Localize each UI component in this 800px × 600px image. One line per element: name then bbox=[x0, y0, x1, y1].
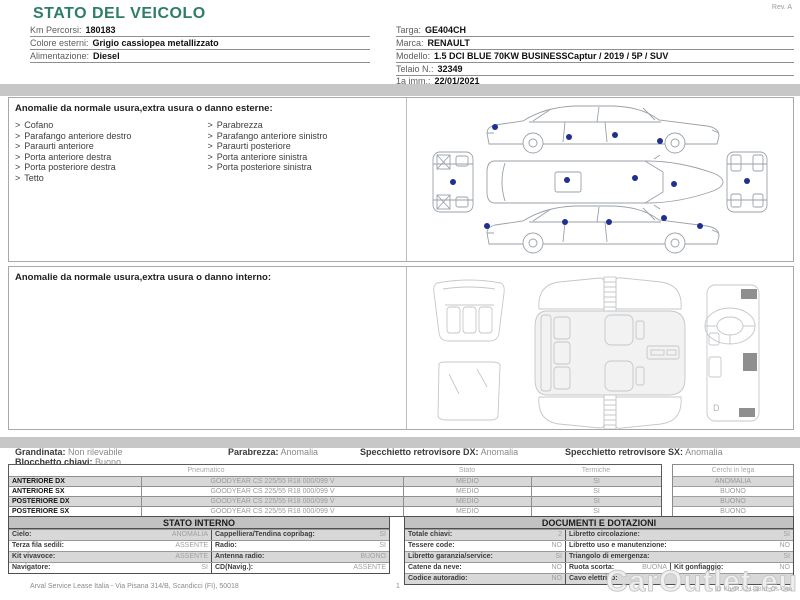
exterior-diagram-panel bbox=[407, 98, 793, 261]
exterior-damage-diagram bbox=[407, 100, 793, 260]
interior-diagram: D bbox=[407, 269, 793, 429]
tire-termiche: SI bbox=[531, 477, 661, 486]
tire-spec: GOODYEAR CS 225/55 R18 000/099 V bbox=[141, 507, 403, 516]
list-item: >Parabrezza bbox=[208, 120, 401, 131]
field-alimentazione: Alimentazione: Diesel bbox=[30, 50, 370, 63]
cerchi-value: BUONO bbox=[673, 496, 793, 506]
exterior-anomalies-section: Anomalie da normale usura,extra usura o … bbox=[8, 97, 794, 262]
damage-dot bbox=[450, 179, 456, 185]
tire-stato: MEDIO bbox=[403, 497, 531, 506]
table-row: Kit vivavoce: ASSENTE Antenna radio: BUO… bbox=[9, 551, 389, 562]
field-value: GE404CH bbox=[425, 25, 466, 35]
table-row: Navigatore: SI CD(Navig.): ASSENTE bbox=[9, 562, 389, 573]
tire-position: POSTERIORE DX bbox=[9, 497, 141, 506]
section-title: Anomalie da normale usura,extra usura o … bbox=[15, 272, 400, 283]
field-value: 1.5 DCI BLUE 70KW BUSINESSCaptur / 2019 … bbox=[434, 51, 668, 61]
table-row: POSTERIORE DX GOODYEAR CS 225/55 R18 000… bbox=[9, 496, 661, 506]
revision-label: Rev. A bbox=[772, 4, 792, 11]
tire-spec: GOODYEAR CS 225/55 R18 000/099 V bbox=[141, 497, 403, 506]
exterior-anomalies-list: Anomalie da normale usura,extra usura o … bbox=[9, 98, 407, 261]
hood-view bbox=[438, 362, 500, 420]
table-row: ANTERIORE DX GOODYEAR CS 225/55 R18 000/… bbox=[9, 476, 661, 486]
tire-stato: MEDIO bbox=[403, 477, 531, 486]
field-label: Modello: bbox=[396, 51, 430, 61]
car-top-view bbox=[487, 155, 723, 209]
page-title: STATO DEL VEICOLO bbox=[33, 5, 206, 23]
list-item: >Parafango anteriore sinistro bbox=[208, 131, 401, 142]
tire-position: ANTERIORE DX bbox=[9, 477, 141, 486]
documenti-dotazioni-table: DOCUMENTI E DOTAZIONI Totale chiavi: 2 L… bbox=[404, 516, 794, 585]
table-row: Catene da neve: NO Ruota scorta: BUONA K… bbox=[405, 562, 793, 573]
column-header: Termiche bbox=[531, 465, 661, 476]
column-header: Stato bbox=[403, 465, 531, 476]
table-header-row: Pneumatico Stato Termiche bbox=[9, 465, 661, 476]
vehicle-info-left: Km Percorsi: 180183 Colore esterni: Grig… bbox=[30, 24, 370, 63]
damage-dot bbox=[566, 134, 572, 140]
damage-dot bbox=[671, 181, 677, 187]
interior-anomalies-section: Anomalie da normale usura,extra usura o … bbox=[8, 266, 794, 430]
list-item: >Paraurti posteriore bbox=[208, 141, 401, 152]
field-modello: Modello: 1.5 DCI BLUE 70KW BUSINESSCaptu… bbox=[396, 50, 794, 63]
interior-diagram-panel: D bbox=[407, 267, 793, 429]
car-side-view-left bbox=[487, 206, 719, 253]
tire-stato: MEDIO bbox=[403, 507, 531, 516]
summary-specchietto-dx: Specchietto retrovisore DX: Anomalia bbox=[360, 447, 518, 457]
damage-dot bbox=[661, 215, 667, 221]
field-value: 180183 bbox=[86, 25, 116, 35]
cerchi-value: BUONO bbox=[673, 506, 793, 516]
tire-stato: MEDIO bbox=[403, 487, 531, 496]
field-label: Targa: bbox=[396, 25, 421, 35]
field-telaio: Telaio N.: 32349 bbox=[396, 63, 794, 76]
table-title: STATO INTERNO bbox=[9, 517, 389, 529]
field-label: Alimentazione: bbox=[30, 51, 89, 61]
tire-termiche: SI bbox=[531, 497, 661, 506]
damage-markers bbox=[450, 124, 750, 229]
cerchi-value: BUONO bbox=[673, 486, 793, 496]
anomaly-column-right: >Parabrezza >Parafango anteriore sinistr… bbox=[208, 120, 401, 183]
field-targa: Targa: GE404CH bbox=[396, 24, 794, 37]
list-item: >Parafango anteriore destro bbox=[15, 131, 208, 142]
damage-dot bbox=[484, 223, 490, 229]
field-label: Marca: bbox=[396, 38, 424, 48]
damage-dot bbox=[492, 124, 498, 130]
damage-dot bbox=[612, 132, 618, 138]
interior-anomalies-list: Anomalie da normale usura,extra usura o … bbox=[9, 267, 407, 429]
table-row: Tessere code: NO Libretto uso e manutenz… bbox=[405, 540, 793, 551]
table-row: Totale chiavi: 2 Libretto circolazione: … bbox=[405, 529, 793, 540]
field-colore-esterni: Colore esterni: Grigio cassiopea metalli… bbox=[30, 37, 370, 50]
damage-dot bbox=[744, 178, 750, 184]
field-km-percorsi: Km Percorsi: 180183 bbox=[30, 24, 370, 37]
damage-dot bbox=[632, 175, 638, 181]
field-value: 32349 bbox=[438, 64, 463, 74]
field-label: Km Percorsi: bbox=[30, 25, 82, 35]
car-side-view-right bbox=[487, 106, 719, 153]
column-header: Cerchi in lega bbox=[673, 465, 793, 476]
vehicle-status-report: STATO DEL VEICOLO Rev. A Km Percorsi: 18… bbox=[0, 0, 800, 600]
cerchi-value: ANOMALIA bbox=[673, 476, 793, 486]
field-label: Telaio N.: bbox=[396, 64, 434, 74]
table-title: DOCUMENTI E DOTAZIONI bbox=[405, 517, 793, 529]
trunk-view bbox=[434, 280, 504, 341]
damage-dot bbox=[564, 177, 570, 183]
field-label: Colore esterni: bbox=[30, 38, 89, 48]
list-item: >Porta posteriore sinistra bbox=[208, 162, 401, 173]
table-row: Terza fila sedili: ASSENTE Radio: SI bbox=[9, 540, 389, 551]
cabin-plan-view bbox=[535, 277, 685, 429]
tire-termiche: SI bbox=[531, 487, 661, 496]
table-row: Cielo: ANOMALIA Cappelliera/Tendina copr… bbox=[9, 529, 389, 540]
table-row: POSTERIORE SX GOODYEAR CS 225/55 R18 000… bbox=[9, 506, 661, 516]
damage-dot bbox=[657, 138, 663, 144]
footer-doc-id: ID Ku/IRJ-21-a8Id ;Os-04u bbox=[715, 586, 792, 593]
summary-grandinata: Grandinata: Non rilevabile bbox=[15, 447, 123, 457]
summary-specchietto-sx: Specchietto retrovisore SX: Anomalia bbox=[565, 447, 723, 457]
field-value: RENAULT bbox=[428, 38, 470, 48]
table-row: Codice autoradio: NO Cavo elettrico: bbox=[405, 573, 793, 584]
list-item: >Cofano bbox=[15, 120, 208, 131]
list-item: >Porta posteriore destra bbox=[15, 162, 208, 173]
tire-position: ANTERIORE SX bbox=[9, 487, 141, 496]
footer-company: Arval Service Lease Italia - Via Pisana … bbox=[30, 583, 239, 590]
tire-spec: GOODYEAR CS 225/55 R18 000/099 V bbox=[141, 477, 403, 486]
table-row: Libretto garanzia/service: SI Triangolo … bbox=[405, 551, 793, 562]
damage-dot bbox=[606, 219, 612, 225]
column-header: Pneumatico bbox=[9, 465, 403, 476]
list-item: >Tetto bbox=[15, 173, 208, 184]
cerchi-in-lega-table: Cerchi in lega ANOMALIA BUONO BUONO BUON… bbox=[672, 464, 794, 517]
summary-parabrezza: Parabrezza: Anomalia bbox=[228, 447, 318, 457]
tire-termiche: SI bbox=[531, 507, 661, 516]
field-value: Diesel bbox=[93, 51, 120, 61]
list-item: >Porta anteriore sinistra bbox=[208, 152, 401, 163]
list-item: >Paraurti anteriore bbox=[15, 141, 208, 152]
table-row: ANTERIORE SX GOODYEAR CS 225/55 R18 000/… bbox=[9, 486, 661, 496]
tire-table-main: Pneumatico Stato Termiche ANTERIORE DX G… bbox=[8, 464, 662, 517]
section-title: Anomalie da normale usura,extra usura o … bbox=[15, 103, 400, 114]
dashboard-view bbox=[705, 285, 759, 421]
stato-interno-table: STATO INTERNO Cielo: ANOMALIA Cappellier… bbox=[8, 516, 390, 574]
tire-table: Pneumatico Stato Termiche ANTERIORE DX G… bbox=[8, 464, 794, 515]
separator-bar bbox=[0, 84, 800, 96]
footer-page-number: 1 bbox=[396, 583, 400, 590]
damage-dot bbox=[562, 219, 568, 225]
vehicle-info-right: Targa: GE404CH Marca: RENAULT Modello: 1… bbox=[396, 24, 794, 89]
damage-dot bbox=[697, 223, 703, 229]
dashboard-label: D bbox=[713, 403, 720, 413]
list-item: >Porta anteriore destra bbox=[15, 152, 208, 163]
field-marca: Marca: RENAULT bbox=[396, 37, 794, 50]
anomaly-column-left: >Cofano >Parafango anteriore destro >Par… bbox=[15, 120, 208, 183]
tire-position: POSTERIORE SX bbox=[9, 507, 141, 516]
field-value: Grigio cassiopea metallizzato bbox=[93, 38, 219, 48]
tire-spec: GOODYEAR CS 225/55 R18 000/099 V bbox=[141, 487, 403, 496]
